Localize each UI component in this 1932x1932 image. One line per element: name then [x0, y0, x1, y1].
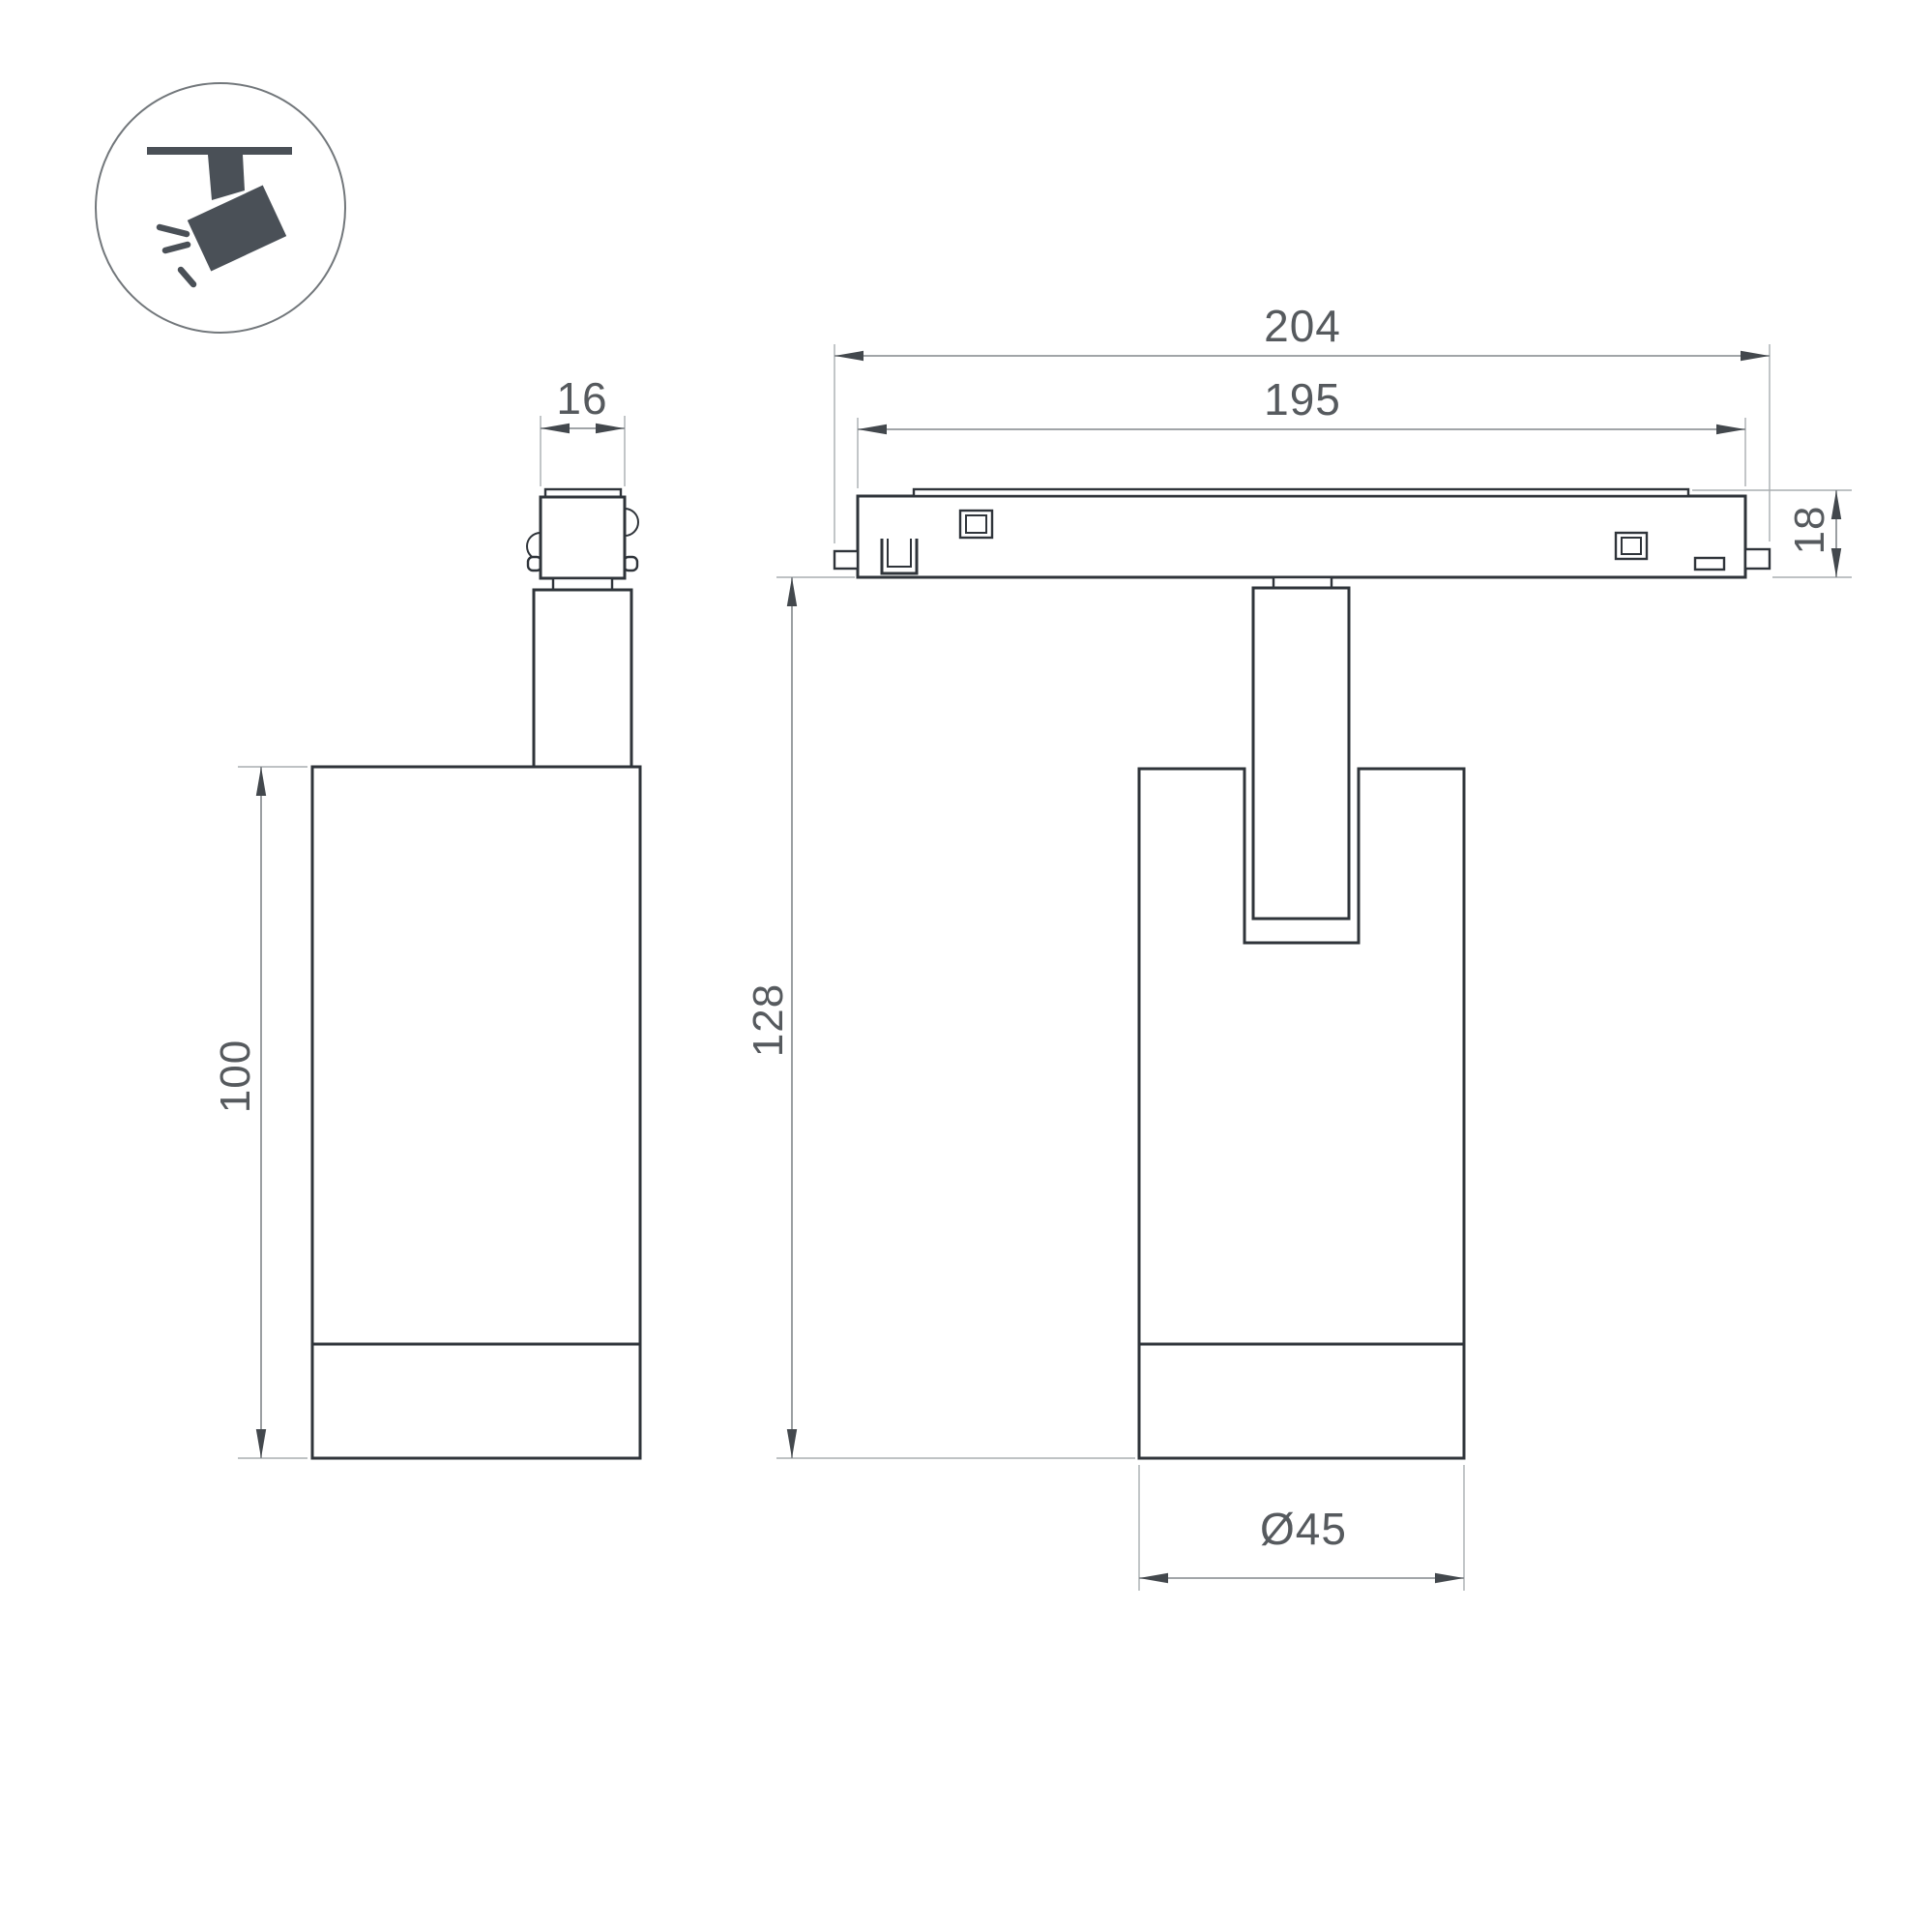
spotlight-type-icon	[96, 83, 345, 333]
front-track-end-tab-left	[834, 551, 858, 569]
dimension-label: 204	[1264, 301, 1341, 351]
front-slot-right	[1695, 558, 1724, 570]
side-adapter-ear-right	[625, 509, 638, 536]
side-view	[312, 489, 640, 1458]
front-collar	[1273, 577, 1332, 588]
icon-ceiling-bar	[147, 147, 292, 155]
dimension-adapter-width: 16	[541, 373, 625, 486]
side-stem	[534, 590, 631, 767]
front-stem	[1253, 588, 1349, 919]
side-track-adapter	[541, 497, 625, 578]
dimension-body-height: 100	[212, 767, 307, 1458]
dimension-label: 18	[1786, 506, 1833, 555]
drawing-canvas: 16 100 204 195 18 128 Ø45	[0, 0, 1932, 1932]
dimension-drawing-svg: 16 100 204 195 18 128 Ø45	[0, 0, 1932, 1932]
dimension-body-diameter: Ø45	[1139, 1465, 1464, 1591]
dimension-label: 100	[212, 1039, 259, 1113]
dimension-track-body-length: 195	[858, 374, 1745, 488]
side-neck	[553, 578, 612, 590]
front-track-rail-strip	[914, 489, 1688, 496]
dimension-label: 195	[1264, 374, 1341, 424]
front-track-end-tab-right	[1745, 549, 1770, 569]
dimension-label: 128	[745, 983, 792, 1057]
side-body	[312, 767, 640, 1458]
dimension-label: Ø45	[1260, 1504, 1347, 1554]
dimension-label: 16	[556, 373, 607, 424]
dimension-fixture-height: 128	[745, 577, 1135, 1458]
front-view	[834, 489, 1770, 1458]
